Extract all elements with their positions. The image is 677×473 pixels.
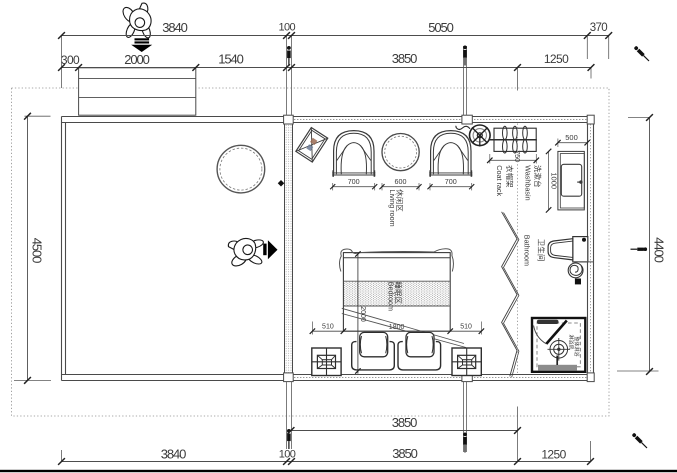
svg-text:3850: 3850 xyxy=(392,51,417,66)
svg-text:300: 300 xyxy=(61,53,80,67)
svg-text:Bedroom: Bedroom xyxy=(386,282,395,311)
svg-text:1800: 1800 xyxy=(389,324,405,331)
svg-text:Bathroom: Bathroom xyxy=(522,235,531,266)
svg-text:510: 510 xyxy=(460,323,472,330)
svg-text:1000: 1000 xyxy=(550,172,559,189)
svg-text:500: 500 xyxy=(565,133,578,142)
svg-text:3850: 3850 xyxy=(392,446,417,461)
svg-text:1250: 1250 xyxy=(544,52,569,66)
svg-text:600: 600 xyxy=(395,177,407,186)
svg-text:4400: 4400 xyxy=(652,237,667,262)
svg-text:整体淋浴: 整体淋浴 xyxy=(573,337,580,357)
svg-text:洗漱台: 洗漱台 xyxy=(533,165,542,188)
svg-text:700: 700 xyxy=(348,177,360,186)
svg-text:卫生间: 卫生间 xyxy=(537,239,546,262)
svg-text:2000: 2000 xyxy=(124,52,149,67)
svg-text:3840: 3840 xyxy=(162,20,187,35)
svg-text:3840: 3840 xyxy=(161,446,186,461)
svg-text:100: 100 xyxy=(279,22,296,34)
svg-text:750: 750 xyxy=(513,150,520,162)
svg-text:1540: 1540 xyxy=(218,52,243,67)
svg-text:3850: 3850 xyxy=(392,415,417,430)
svg-text:2000: 2000 xyxy=(359,306,366,322)
svg-text:4500: 4500 xyxy=(29,238,44,263)
svg-text:510: 510 xyxy=(322,323,334,330)
svg-text:1250: 1250 xyxy=(541,448,566,462)
svg-text:700: 700 xyxy=(445,177,457,186)
svg-text:5050: 5050 xyxy=(428,20,453,35)
svg-text:衣帽架: 衣帽架 xyxy=(505,165,514,188)
svg-text:Living room: Living room xyxy=(388,190,397,227)
svg-text:Washbasin: Washbasin xyxy=(523,165,532,200)
svg-text:Coat rack: Coat rack xyxy=(495,165,504,196)
svg-text:100: 100 xyxy=(279,448,296,460)
svg-text:370: 370 xyxy=(590,22,608,34)
